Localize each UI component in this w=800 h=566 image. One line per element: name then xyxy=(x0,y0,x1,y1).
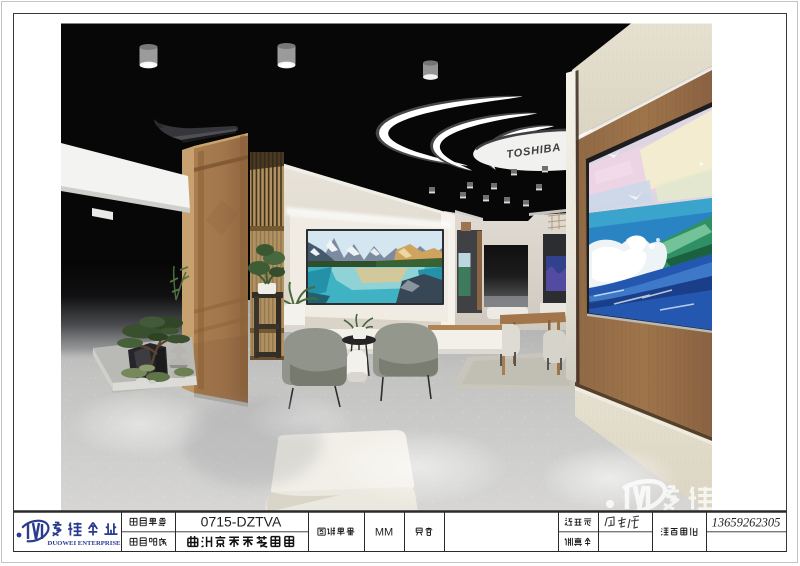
svg-text:MM: MM xyxy=(375,527,393,539)
svg-text:13659262305: 13659262305 xyxy=(712,516,781,530)
svg-text:DUOWEI ENTERPRISE: DUOWEI ENTERPRISE xyxy=(47,540,121,547)
svg-text:0715-DZTVA: 0715-DZTVA xyxy=(201,514,282,530)
